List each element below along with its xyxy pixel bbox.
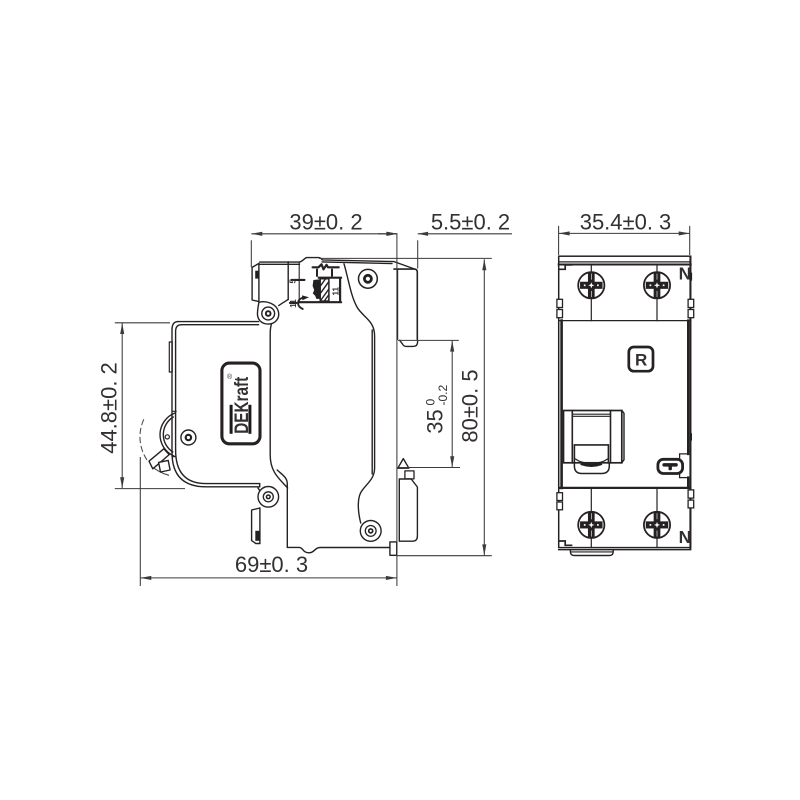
- svg-text:N: N: [679, 264, 692, 284]
- svg-text:35.4±0. 3: 35.4±0. 3: [580, 210, 672, 235]
- svg-text:11: 11: [289, 299, 298, 308]
- svg-text:35: 35: [423, 409, 448, 433]
- svg-text:80±0. 5: 80±0. 5: [458, 369, 483, 442]
- svg-text:44.8±0. 2: 44.8±0. 2: [97, 362, 122, 454]
- svg-text:5.5±0. 2: 5.5±0. 2: [431, 210, 510, 235]
- svg-text:R: R: [635, 351, 647, 370]
- svg-text:5: 5: [289, 279, 298, 284]
- svg-text:N: N: [679, 527, 692, 547]
- svg-text:39±0. 2: 39±0. 2: [289, 210, 362, 235]
- svg-text:®: ®: [227, 373, 233, 381]
- svg-text:-0.2: -0.2: [436, 384, 450, 405]
- svg-text:11: 11: [332, 286, 341, 295]
- svg-text:69±0. 3: 69±0. 3: [235, 552, 308, 577]
